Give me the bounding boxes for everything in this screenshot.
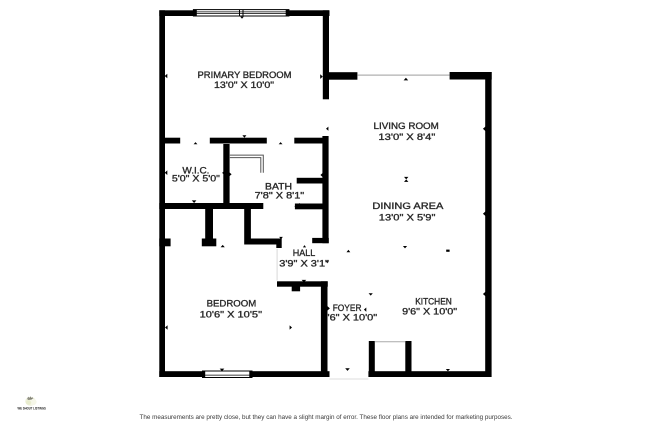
svg-text:PRIMARY BEDROOM: PRIMARY BEDROOM <box>198 70 292 80</box>
svg-text:7'8" X 8'1": 7'8" X 8'1" <box>255 191 305 201</box>
svg-text:10'6" X 10'5": 10'6" X 10'5" <box>200 309 262 319</box>
svg-text:BEDROOM: BEDROOM <box>207 298 257 308</box>
svg-text:5'0" X 5'0": 5'0" X 5'0" <box>172 174 220 184</box>
svg-text:HALL: HALL <box>293 248 316 258</box>
svg-text:LIVING ROOM: LIVING ROOM <box>374 121 439 131</box>
svg-text:DINING AREA: DINING AREA <box>372 201 444 211</box>
svg-text:3'9" X 3'1": 3'9" X 3'1" <box>279 258 329 268</box>
svg-text:The measurements are pretty cl: The measurements are pretty close, but t… <box>140 414 513 421</box>
svg-text:13'0" X 5'9": 13'0" X 5'9" <box>379 212 436 222</box>
svg-text:9'6" X 10'0": 9'6" X 10'0" <box>402 306 457 316</box>
svg-text:13'0" X 8'4": 13'0" X 8'4" <box>378 132 435 142</box>
svg-text:13'0" X 10'0": 13'0" X 10'0" <box>214 80 274 90</box>
svg-text:WE SHOUT LISTINGS: WE SHOUT LISTINGS <box>18 405 47 410</box>
svg-text:KITCHEN: KITCHEN <box>415 297 452 307</box>
svg-text:3'6" X 10'0": 3'6" X 10'0" <box>321 312 377 322</box>
